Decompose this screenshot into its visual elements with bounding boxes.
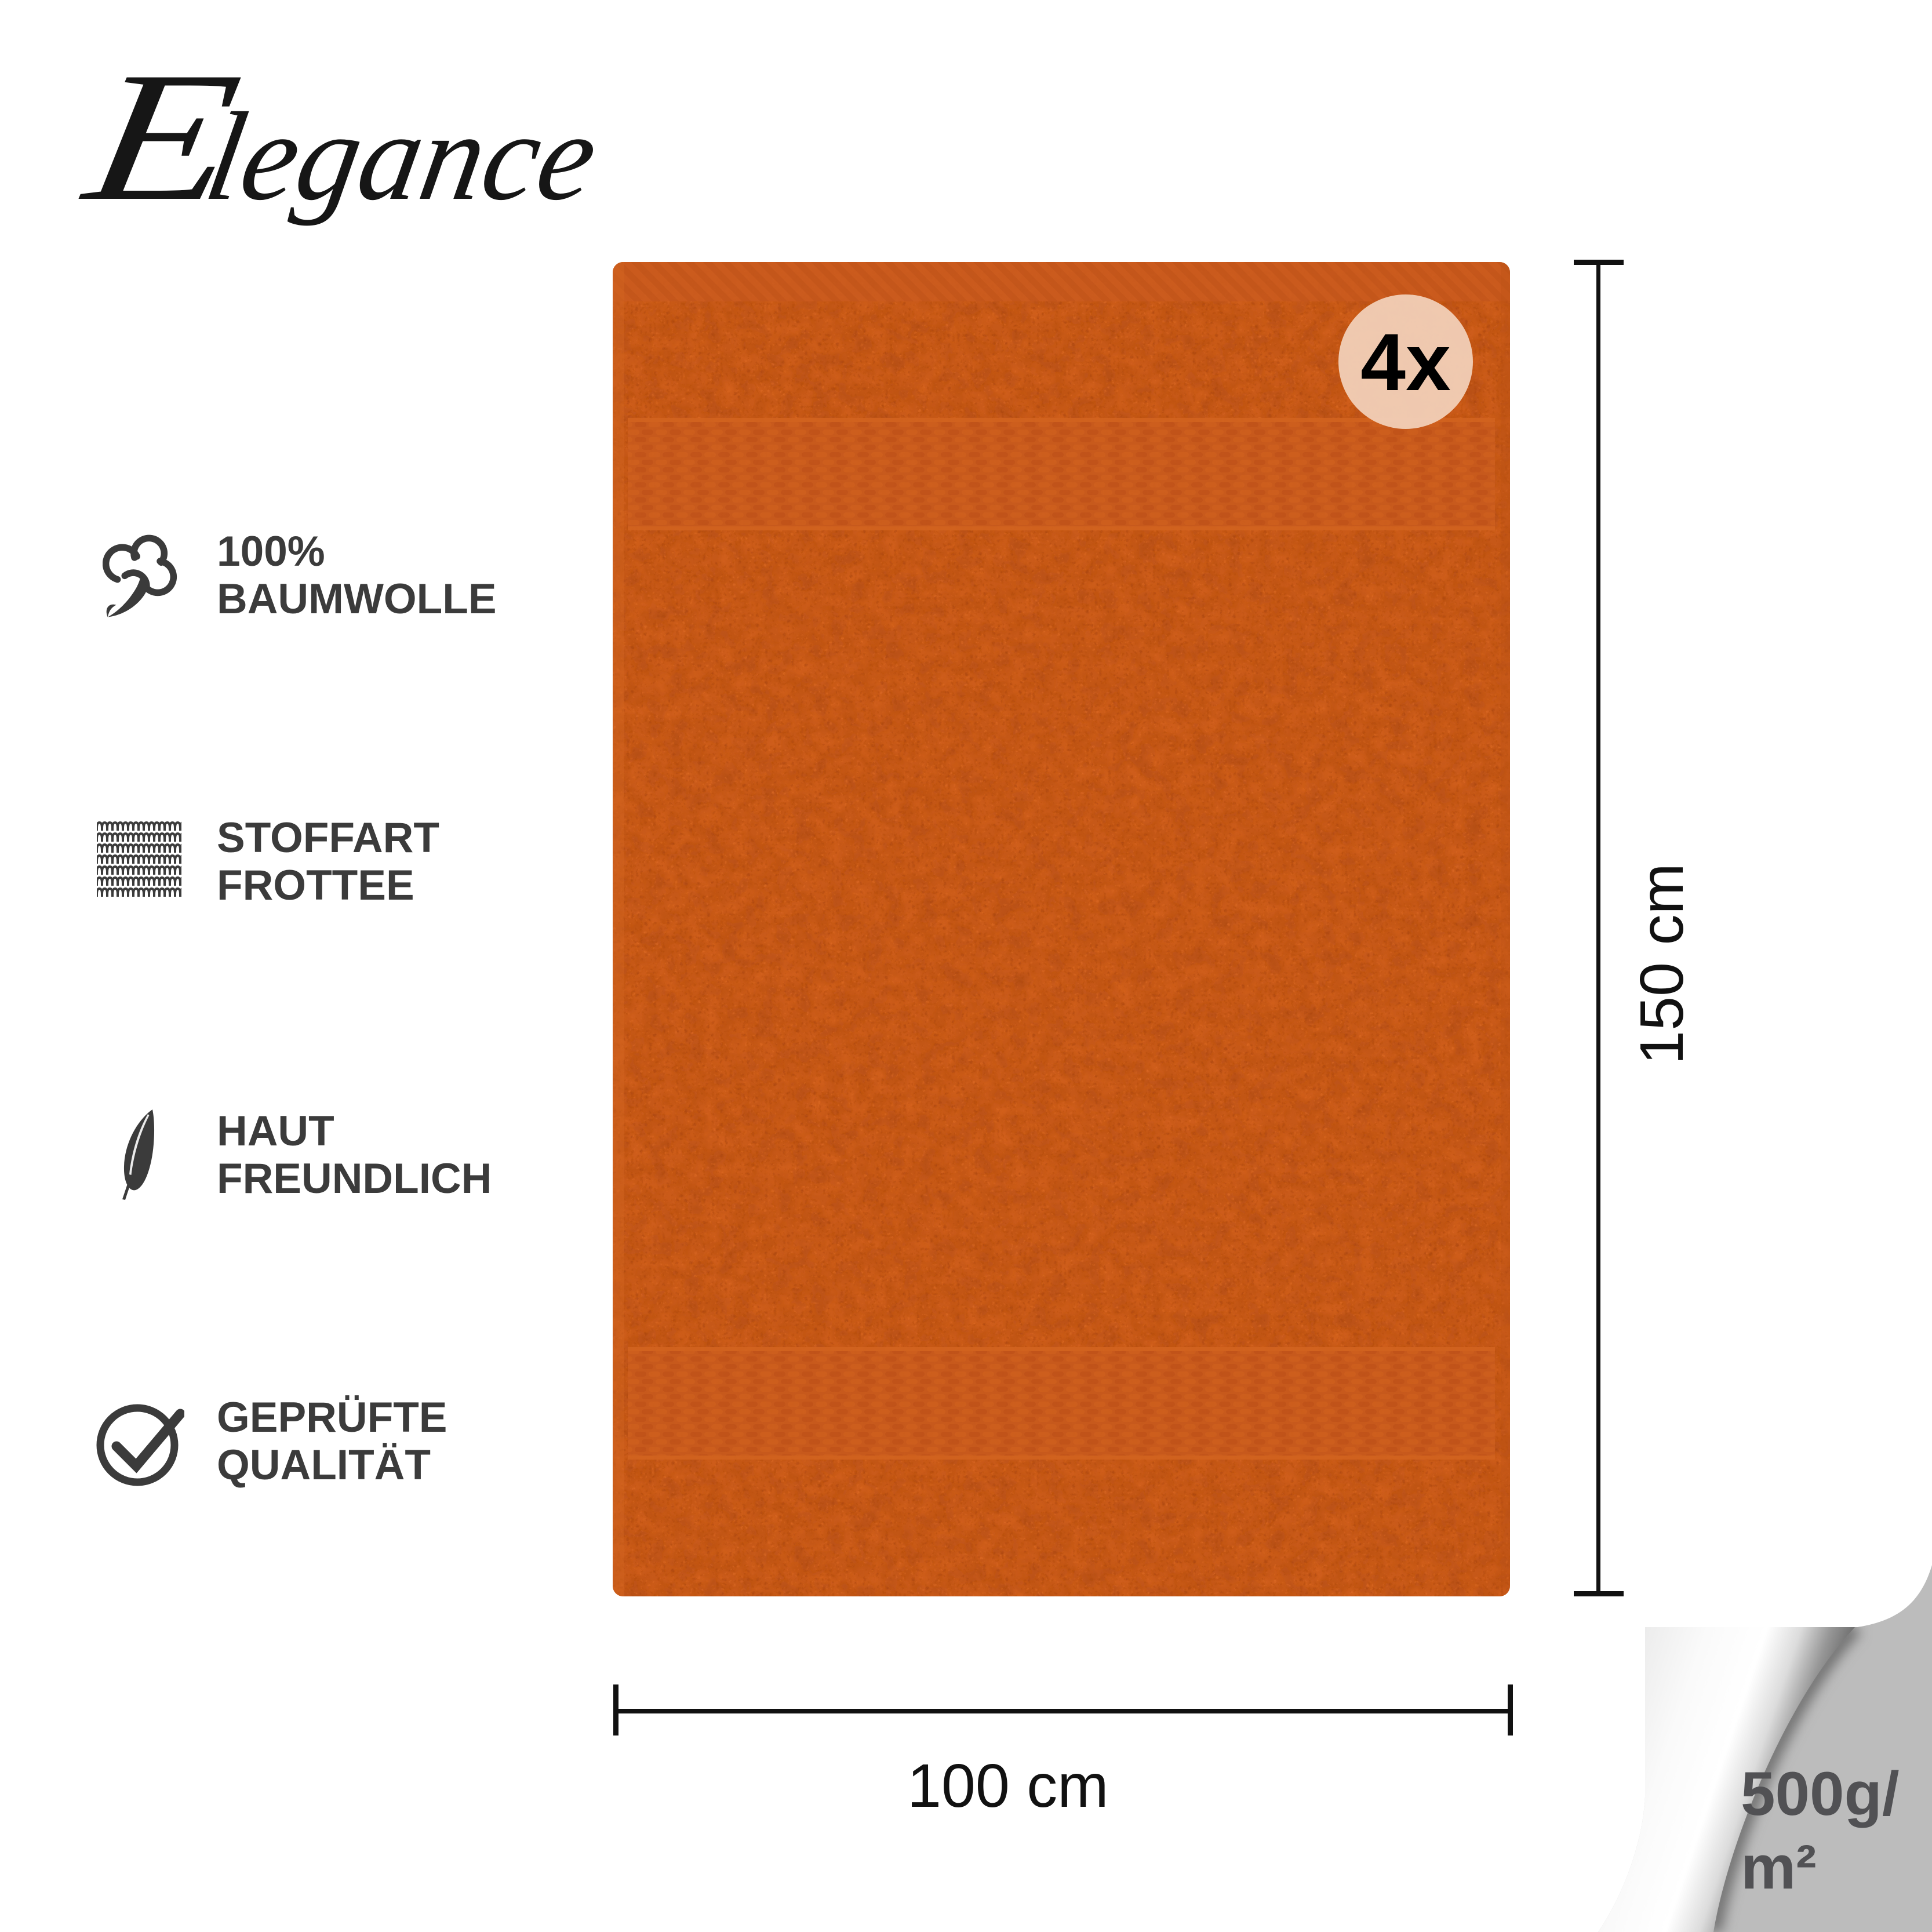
svg-text:legance: legance: [197, 86, 607, 227]
svg-text:4x: 4x: [1360, 316, 1451, 407]
